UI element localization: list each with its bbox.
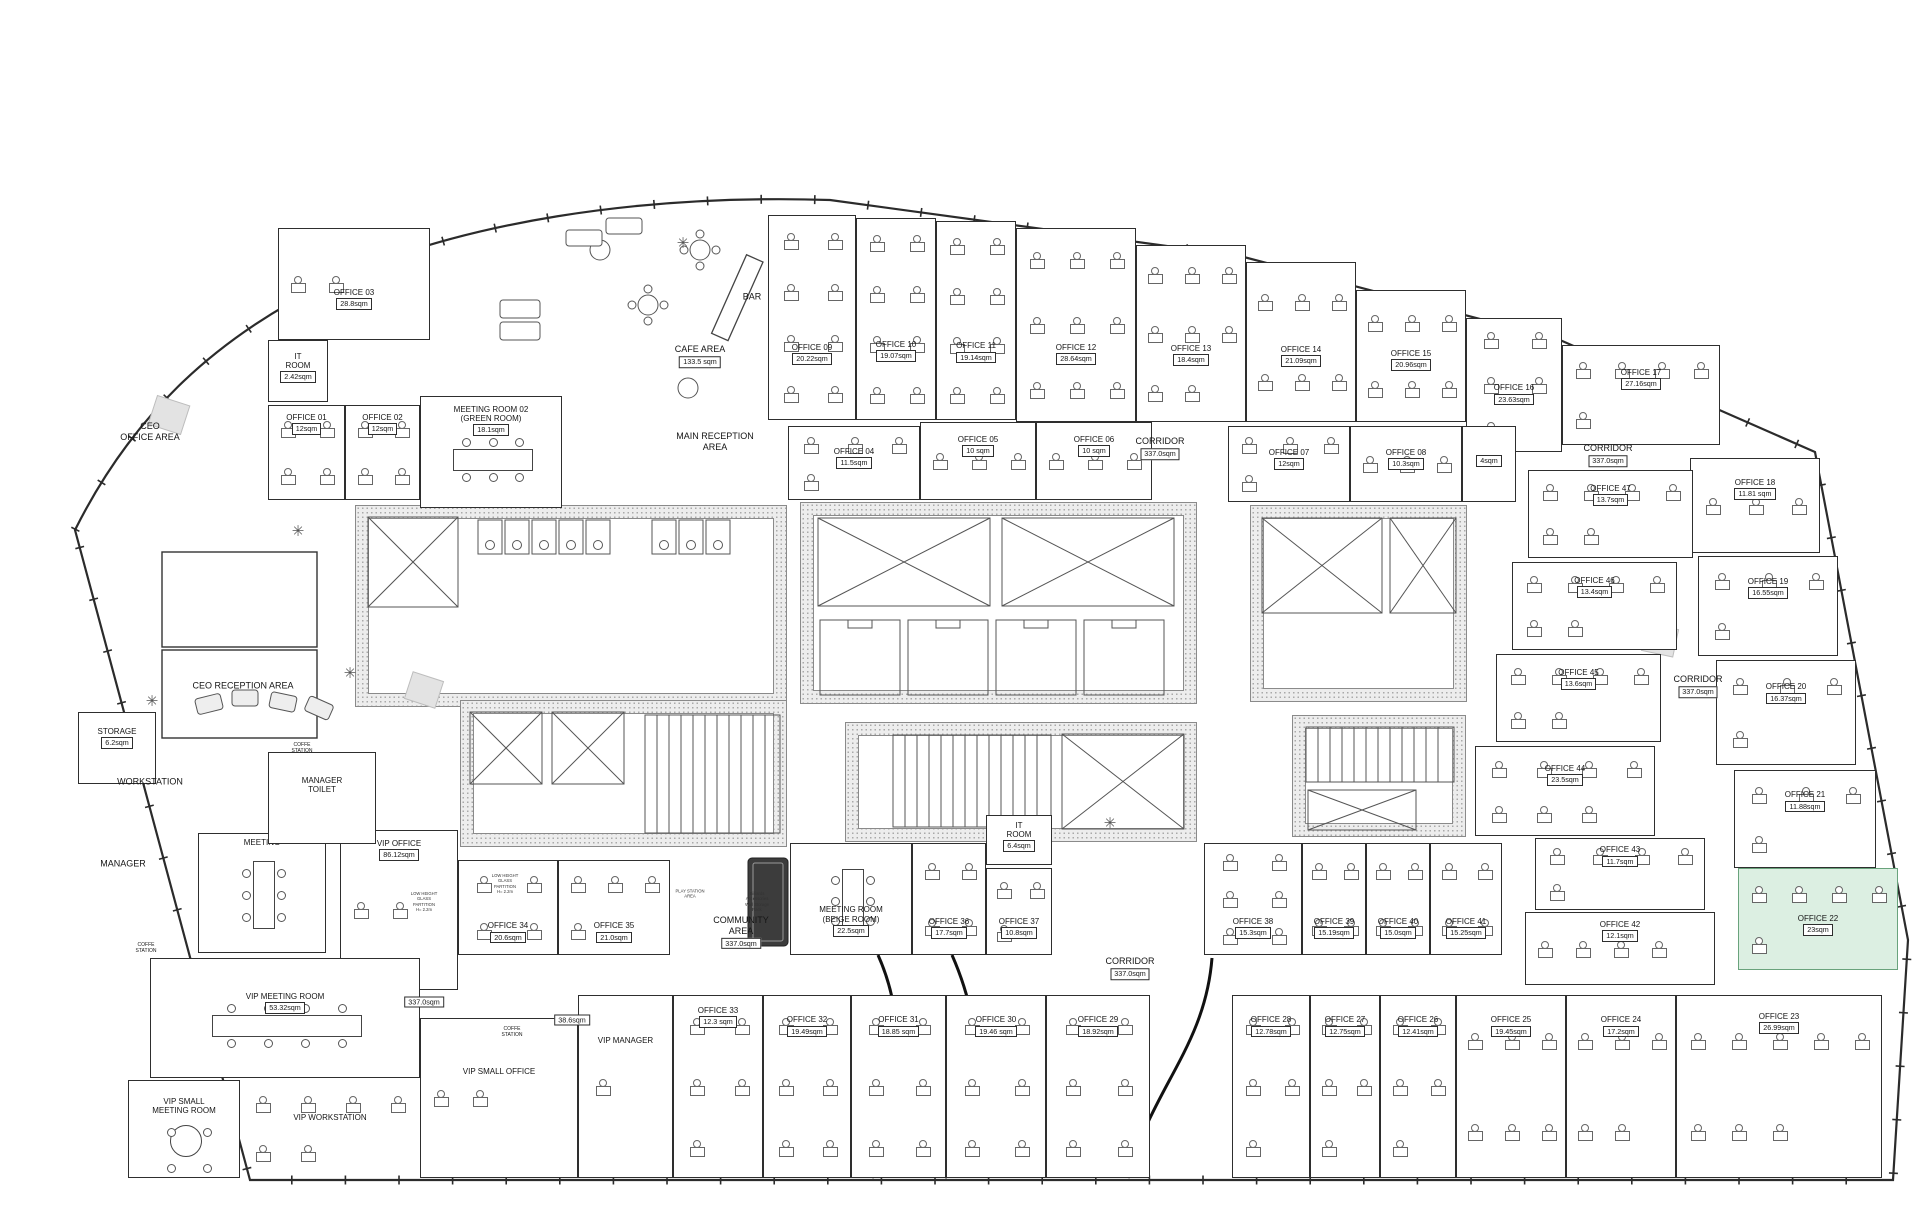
area-badge: 337.0sqm xyxy=(404,997,444,1008)
desk-icon xyxy=(1855,1040,1870,1050)
room-name: OFFICE 31 xyxy=(878,1015,918,1024)
chair-icon xyxy=(831,917,840,926)
desk-icon xyxy=(1405,322,1420,332)
desk-icon xyxy=(477,930,492,940)
desk-icon xyxy=(784,342,799,352)
desk-icon xyxy=(1368,388,1383,398)
room-office-40: OFFICE 4015.0sqm xyxy=(1366,843,1430,955)
chair-icon xyxy=(227,1039,236,1048)
room-name: OFFICE 13 xyxy=(1171,344,1211,353)
room-office-03: OFFICE 0328.8sqm xyxy=(278,228,430,340)
desk-icon xyxy=(1437,463,1452,473)
desk-icon xyxy=(354,909,369,919)
desk-icon xyxy=(784,291,799,301)
chair-icon xyxy=(301,1004,310,1013)
desk-icon xyxy=(1376,870,1391,880)
desk-icon xyxy=(1635,855,1650,865)
chair-icon xyxy=(264,1039,273,1048)
desk-icon xyxy=(1532,384,1547,394)
desk-icon xyxy=(1846,794,1861,804)
desk-icon xyxy=(1832,893,1847,903)
desk-icon xyxy=(1322,1147,1337,1157)
room-office-35: OFFICE 3521.0sqm xyxy=(558,860,670,955)
room-name: VIP MEETING ROOM xyxy=(246,992,325,1001)
room-name: OFFICE 29 xyxy=(1078,1015,1118,1024)
room-it-room: IT ROOM2.42sqm xyxy=(268,340,328,402)
desk-icon xyxy=(1694,369,1709,379)
chair-icon xyxy=(242,913,251,922)
desk-icon xyxy=(1118,1025,1133,1035)
desk-icon xyxy=(965,1147,980,1157)
desk-icon xyxy=(281,475,296,485)
room-area-badge: 21.09sqm xyxy=(1281,355,1321,367)
desk-icon xyxy=(997,932,1012,942)
desk-icon xyxy=(1295,381,1310,391)
desk-icon xyxy=(1285,1086,1300,1096)
desk-icon xyxy=(1652,1040,1667,1050)
room-meeting-room-beige-room: MEETING ROOM (BEIGE ROOM)22.5sqm xyxy=(790,843,912,955)
desk-icon xyxy=(1615,1040,1630,1050)
desk-icon xyxy=(1511,675,1526,685)
room-office-21: OFFICE 2111.88sqm xyxy=(1734,770,1876,868)
room-area-badge: 2.42sqm xyxy=(280,371,316,383)
desk-icon xyxy=(1246,1025,1261,1035)
room-office-14: OFFICE 1421.09sqm xyxy=(1246,262,1356,422)
room-name: OFFICE 42 xyxy=(1600,920,1640,929)
desk-icon xyxy=(1070,259,1085,269)
desk-icon xyxy=(1258,381,1273,391)
desk-icon xyxy=(1505,1040,1520,1050)
desk-icon xyxy=(1357,1025,1372,1035)
desk-icon xyxy=(962,926,977,936)
desk-icon xyxy=(1576,419,1591,429)
desk-icon xyxy=(395,428,410,438)
desk-icon xyxy=(1792,893,1807,903)
desk-icon xyxy=(1393,1086,1408,1096)
desk-icon xyxy=(1408,926,1423,936)
room-name: OFFICE 43 xyxy=(1600,845,1640,854)
room-office-26: OFFICE 2612.41sqm xyxy=(1380,995,1456,1178)
desk-icon xyxy=(1706,505,1721,515)
room-office-13: OFFICE 1318.4sqm xyxy=(1136,245,1246,422)
desk-icon xyxy=(1584,491,1599,501)
room-office-05: OFFICE 0510 sqm xyxy=(920,422,1036,500)
desk-icon xyxy=(1015,1147,1030,1157)
room-office-33: OFFICE 3312.3 sqm xyxy=(673,995,763,1178)
desk-icon xyxy=(571,883,586,893)
room-office-28: OFFICE 2812.78sqm xyxy=(1232,995,1310,1178)
desk-icon xyxy=(1584,535,1599,545)
desk-icon xyxy=(690,1147,705,1157)
room-office-45: OFFICE 4513.6sqm xyxy=(1496,654,1661,742)
room-area-badge: 11.5sqm xyxy=(836,457,871,469)
desk-icon xyxy=(1431,1025,1446,1035)
desk-icon xyxy=(1814,1040,1829,1050)
chair-icon xyxy=(203,1164,212,1173)
room-name: IT ROOM xyxy=(286,352,311,370)
room-area-badge: 6.2sqm xyxy=(101,737,133,749)
room-name: OFFICE 23 xyxy=(1759,1012,1799,1021)
desk-icon xyxy=(1780,685,1795,695)
room-it-room: IT ROOM6.4sqm xyxy=(986,815,1052,865)
desk-icon xyxy=(1322,1086,1337,1096)
desk-icon xyxy=(925,926,940,936)
desk-icon xyxy=(1222,333,1237,343)
desk-icon xyxy=(804,444,819,454)
chair-icon xyxy=(242,869,251,878)
room-name: VIP MANAGER xyxy=(598,1036,653,1045)
desk-icon xyxy=(933,460,948,470)
desk-icon xyxy=(892,444,907,454)
desk-icon xyxy=(1492,813,1507,823)
desk-icon xyxy=(916,1147,931,1157)
desk-icon xyxy=(301,1152,316,1162)
desk-icon xyxy=(1363,463,1378,473)
room-office-42: OFFICE 4212.1sqm xyxy=(1525,912,1715,985)
desk-icon xyxy=(1376,926,1391,936)
room-area-badge: 26.99sqm xyxy=(1759,1022,1799,1034)
desk-icon xyxy=(1368,322,1383,332)
desk-icon xyxy=(1110,324,1125,334)
desk-icon xyxy=(1118,1147,1133,1157)
desk-icon xyxy=(1827,685,1842,695)
desk-icon xyxy=(1066,1086,1081,1096)
desk-icon xyxy=(1543,535,1558,545)
room-office-32: OFFICE 3219.49sqm xyxy=(763,995,851,1178)
desk-icon xyxy=(1792,505,1807,515)
room-name: OFFICE 35 xyxy=(594,921,634,930)
desk-icon xyxy=(1532,339,1547,349)
desk-icon xyxy=(1431,1086,1446,1096)
svg-text:✳: ✳ xyxy=(1699,684,1712,701)
room-name: OFFICE 32 xyxy=(787,1015,827,1024)
desk-icon xyxy=(391,1103,406,1113)
desk-icon xyxy=(1733,685,1748,695)
desk-icon xyxy=(1576,369,1591,379)
desk-icon xyxy=(1593,855,1608,865)
chair-icon xyxy=(277,869,286,878)
room-office-37: OFFICE 3710.8sqm xyxy=(986,868,1052,955)
desk-icon xyxy=(1538,948,1553,958)
room-office-23: OFFICE 2326.99sqm xyxy=(1676,995,1882,1178)
desk-icon xyxy=(1148,392,1163,402)
desk-icon xyxy=(848,444,863,454)
bar-counter-icon xyxy=(712,255,763,341)
desk-icon xyxy=(1773,1040,1788,1050)
desk-icon xyxy=(1799,794,1814,804)
desk-icon xyxy=(916,1025,931,1035)
desk-icon xyxy=(1344,926,1359,936)
room-office-36: OFFICE 3617.7sqm xyxy=(912,843,986,955)
desk-icon xyxy=(972,460,987,470)
desk-icon xyxy=(965,1025,980,1035)
desk-icon xyxy=(1542,1040,1557,1050)
desk-icon xyxy=(1442,926,1457,936)
desk-icon xyxy=(1732,1040,1747,1050)
desk-icon xyxy=(1733,738,1748,748)
desk-icon xyxy=(1543,491,1558,501)
desk-icon xyxy=(925,870,940,880)
desk-icon xyxy=(1246,1147,1261,1157)
room-office-39: OFFICE 3915.19sqm xyxy=(1302,843,1366,955)
room-area-badge: 23sqm xyxy=(1803,924,1833,936)
room-office-18: OFFICE 1811.81 sqm xyxy=(1690,458,1820,553)
room-name: STORAGE xyxy=(98,727,137,736)
desk-icon xyxy=(1527,583,1542,593)
desk-icon xyxy=(1478,870,1493,880)
desk-icon xyxy=(990,344,1005,354)
desk-icon xyxy=(950,344,965,354)
desk-icon xyxy=(1593,675,1608,685)
desk-icon xyxy=(1468,1131,1483,1141)
desk-icon xyxy=(1582,813,1597,823)
desk-icon xyxy=(1872,893,1887,903)
desk-icon xyxy=(301,1103,316,1113)
desk-icon xyxy=(1344,870,1359,880)
desk-icon xyxy=(1285,1025,1300,1035)
desk-icon xyxy=(779,1025,794,1035)
desk-icon xyxy=(1332,301,1347,311)
room-name: OFFICE 05 xyxy=(958,435,998,444)
desk-icon xyxy=(1393,1025,1408,1035)
chair-icon xyxy=(264,1004,273,1013)
chair-icon xyxy=(489,438,498,447)
desk-icon xyxy=(1272,861,1287,871)
desk-icon xyxy=(1615,1131,1630,1141)
desk-icon xyxy=(1715,630,1730,640)
desk-icon xyxy=(1809,580,1824,590)
room-office-15: OFFICE 1520.96sqm xyxy=(1356,290,1466,422)
room-name: VIP SMALL OFFICE xyxy=(463,1067,535,1076)
room-area-badge: 27.16sqm xyxy=(1621,378,1661,390)
room-office-43: OFFICE 4311.7sqm xyxy=(1535,838,1705,910)
room-office-44: OFFICE 4423.5sqm xyxy=(1475,746,1655,836)
desk-icon xyxy=(291,283,306,293)
room-area-badge: 12sqm xyxy=(1274,458,1304,470)
desk-icon xyxy=(779,1147,794,1157)
room-office-09: OFFICE 0920.22sqm xyxy=(768,215,856,420)
desk-icon xyxy=(910,343,925,353)
desk-icon xyxy=(1127,460,1142,470)
chair-icon xyxy=(462,473,471,482)
desk-icon xyxy=(870,242,885,252)
room-office-30: OFFICE 3019.46 sqm xyxy=(946,995,1046,1178)
room-area-badge: 28.8sqm xyxy=(336,298,372,310)
svg-text:✳: ✳ xyxy=(292,523,305,540)
desk-icon xyxy=(828,240,843,250)
desk-icon xyxy=(1550,855,1565,865)
room-office-38: OFFICE 3815.3sqm xyxy=(1204,843,1302,955)
desk-icon xyxy=(1332,381,1347,391)
room-office-27: OFFICE 2712.75sqm xyxy=(1310,995,1380,1178)
room-office-10: OFFICE 1019.07sqm xyxy=(856,218,936,420)
meeting-table-icon xyxy=(842,869,864,933)
room-storage: STORAGE6.2sqm xyxy=(78,712,156,784)
room-office-11: OFFICE 1119.14sqm xyxy=(936,221,1016,420)
desk-icon xyxy=(1148,333,1163,343)
room-office-31: OFFICE 3118.85 sqm xyxy=(851,995,946,1178)
room-area-badge: 12.3 sqm xyxy=(699,1016,737,1028)
desk-icon xyxy=(1652,948,1667,958)
desk-icon xyxy=(1110,259,1125,269)
desk-icon xyxy=(1030,389,1045,399)
desk-icon xyxy=(1324,444,1339,454)
desk-icon xyxy=(1568,627,1583,637)
room-name: OFFICE 24 xyxy=(1601,1015,1641,1024)
desk-icon xyxy=(320,428,335,438)
desk-icon xyxy=(1185,392,1200,402)
chair-icon xyxy=(515,473,524,482)
desk-icon xyxy=(1582,768,1597,778)
desk-icon xyxy=(1492,768,1507,778)
floor-plan: ✳✳✳ ✳✳✳ ✳✳✳ ✳ OFFICE 0328.8sqmIT ROOM2.4… xyxy=(0,0,1920,1209)
room-name: OFFICE 28 xyxy=(1251,1015,1291,1024)
desk-icon xyxy=(1627,768,1642,778)
desk-icon xyxy=(1015,1086,1030,1096)
desk-icon xyxy=(1691,1131,1706,1141)
chair-icon xyxy=(167,1128,176,1137)
desk-icon xyxy=(1246,1086,1261,1096)
desk-icon xyxy=(1242,482,1257,492)
chair-icon xyxy=(227,1004,236,1013)
desk-icon xyxy=(910,242,925,252)
desk-icon xyxy=(1088,460,1103,470)
room-area-badge: 28.64sqm xyxy=(1056,353,1096,365)
chair-icon xyxy=(338,1039,347,1048)
room-vip-workstation: VIP WORKSTATION xyxy=(240,1080,420,1178)
desk-icon xyxy=(1615,369,1630,379)
desk-icon xyxy=(869,1025,884,1035)
room-area-badge: 86.12sqm xyxy=(379,849,419,861)
desk-icon xyxy=(1749,505,1764,515)
desk-icon xyxy=(1185,274,1200,284)
desk-icon xyxy=(1505,1131,1520,1141)
room-office-41: OFFICE 4115.25sqm xyxy=(1430,843,1502,955)
area-badge: 38.6sqm xyxy=(554,1015,590,1026)
room-name: OFFICE 02 xyxy=(362,413,402,422)
desk-icon xyxy=(1691,1040,1706,1050)
desk-icon xyxy=(1222,274,1237,284)
desk-icon xyxy=(823,1086,838,1096)
desk-icon xyxy=(910,394,925,404)
chair-icon xyxy=(515,438,524,447)
room-office-24: OFFICE 2417.2sqm xyxy=(1566,995,1676,1178)
room-area-badge: 20.96sqm xyxy=(1391,359,1431,371)
desk-icon xyxy=(1484,339,1499,349)
desk-icon xyxy=(950,394,965,404)
room-office-17: OFFICE 1727.16sqm xyxy=(1562,345,1720,445)
chair-icon xyxy=(489,473,498,482)
desk-icon xyxy=(1011,460,1026,470)
chair-icon xyxy=(277,913,286,922)
room-office-08: OFFICE 0810.3sqm xyxy=(1350,426,1462,502)
room-office-34: OFFICE 3420.6sqm xyxy=(458,860,558,955)
desk-icon xyxy=(784,393,799,403)
room-name: IT ROOM xyxy=(1007,821,1032,839)
room-office-19: OFFICE 1916.55sqm xyxy=(1698,556,1838,656)
desk-icon xyxy=(1312,870,1327,880)
room-name: OFFICE 25 xyxy=(1491,1015,1531,1024)
chair-icon xyxy=(203,1128,212,1137)
desk-icon xyxy=(779,1086,794,1096)
desk-icon xyxy=(1357,1086,1372,1096)
shaft-icon xyxy=(368,517,1456,833)
room-name: OFFICE 38 xyxy=(1233,917,1273,926)
chair-icon xyxy=(831,876,840,885)
desk-icon xyxy=(1537,813,1552,823)
chair-icon xyxy=(301,1039,310,1048)
desk-icon xyxy=(571,930,586,940)
chair-icon xyxy=(338,1004,347,1013)
desk-icon xyxy=(1576,948,1591,958)
desk-icon xyxy=(1752,944,1767,954)
room-name: VIP SMALL MEETING ROOM xyxy=(152,1097,216,1115)
desk-icon xyxy=(1185,333,1200,343)
room-vip-meeting-room: VIP MEETING ROOM53.32sqm xyxy=(150,958,420,1078)
desk-icon xyxy=(1070,389,1085,399)
desk-icon xyxy=(1578,1040,1593,1050)
desk-icon xyxy=(950,295,965,305)
chair-icon xyxy=(831,897,840,906)
room-area-badge: 18.92sqm xyxy=(1078,1026,1118,1038)
desk-icon xyxy=(1511,719,1526,729)
chair-icon xyxy=(462,438,471,447)
room-office-01: OFFICE 0112sqm xyxy=(268,405,345,500)
desk-icon xyxy=(1223,898,1238,908)
desk-icon xyxy=(256,1152,271,1162)
desk-icon xyxy=(1049,460,1064,470)
desk-icon xyxy=(1762,580,1777,590)
room-vip-manager: VIP MANAGER xyxy=(578,995,673,1178)
desk-icon xyxy=(1030,324,1045,334)
desk-icon xyxy=(990,394,1005,404)
desk-icon xyxy=(870,343,885,353)
desk-icon xyxy=(1478,926,1493,936)
desk-icon xyxy=(1148,274,1163,284)
room-office-06: OFFICE 0610 sqm xyxy=(1036,422,1152,500)
desk-icon xyxy=(1442,322,1457,332)
desk-icon xyxy=(1393,1147,1408,1157)
room-name: MEETING ROOM 02 (GREEN ROOM) xyxy=(454,405,529,423)
room-name: OFFICE 18 xyxy=(1735,478,1775,487)
desk-icon xyxy=(1484,384,1499,394)
desk-icon xyxy=(1015,1025,1030,1035)
room-office-46: OFFICE 4613.4sqm xyxy=(1512,562,1677,650)
desk-icon xyxy=(1066,1025,1081,1035)
room-vip-small-meeting-room: VIP SMALL MEETING ROOM xyxy=(128,1080,240,1178)
room-area-badge: 6.4sqm xyxy=(1003,840,1035,852)
desk-icon xyxy=(962,870,977,880)
desk-icon xyxy=(735,1086,750,1096)
room-area-badge: 19.46 sqm xyxy=(975,1026,1017,1038)
desk-icon xyxy=(1542,1131,1557,1141)
desk-icon xyxy=(870,293,885,303)
desk-icon xyxy=(395,475,410,485)
svg-text:✳: ✳ xyxy=(677,235,690,252)
desk-icon xyxy=(256,1103,271,1113)
room-area-badge: 23.5sqm xyxy=(1547,774,1583,786)
desk-icon xyxy=(869,1147,884,1157)
desk-icon xyxy=(1400,463,1415,473)
chair-icon xyxy=(167,1164,176,1173)
room-area-badge: 18.4sqm xyxy=(1173,354,1209,366)
desk-icon xyxy=(1715,580,1730,590)
desk-icon xyxy=(916,1086,931,1096)
desk-icon xyxy=(608,883,623,893)
room-name: OFFICE 33 xyxy=(698,1006,738,1015)
desk-icon xyxy=(869,1086,884,1096)
wc-stall-icon xyxy=(478,520,730,554)
